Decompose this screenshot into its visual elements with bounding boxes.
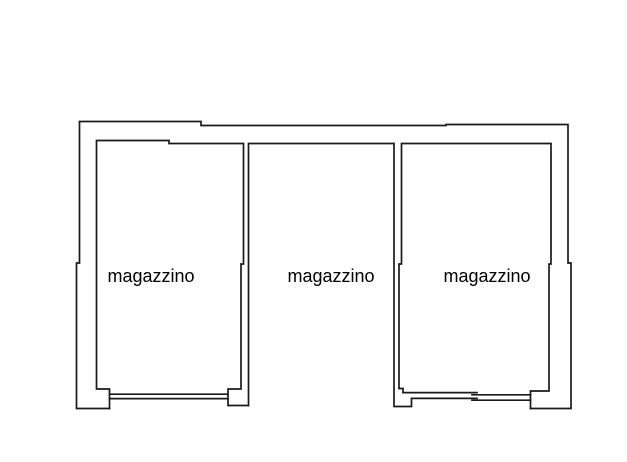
outer-wall-outline [77,122,572,409]
room-label-center: magazzino [283,266,379,286]
room-label-left: magazzino [103,266,199,286]
floor-plan-canvas: magazzino magazzino magazzino [0,0,627,462]
room-label-right: magazzino [439,266,535,286]
floor-plan-drawing [0,0,627,462]
